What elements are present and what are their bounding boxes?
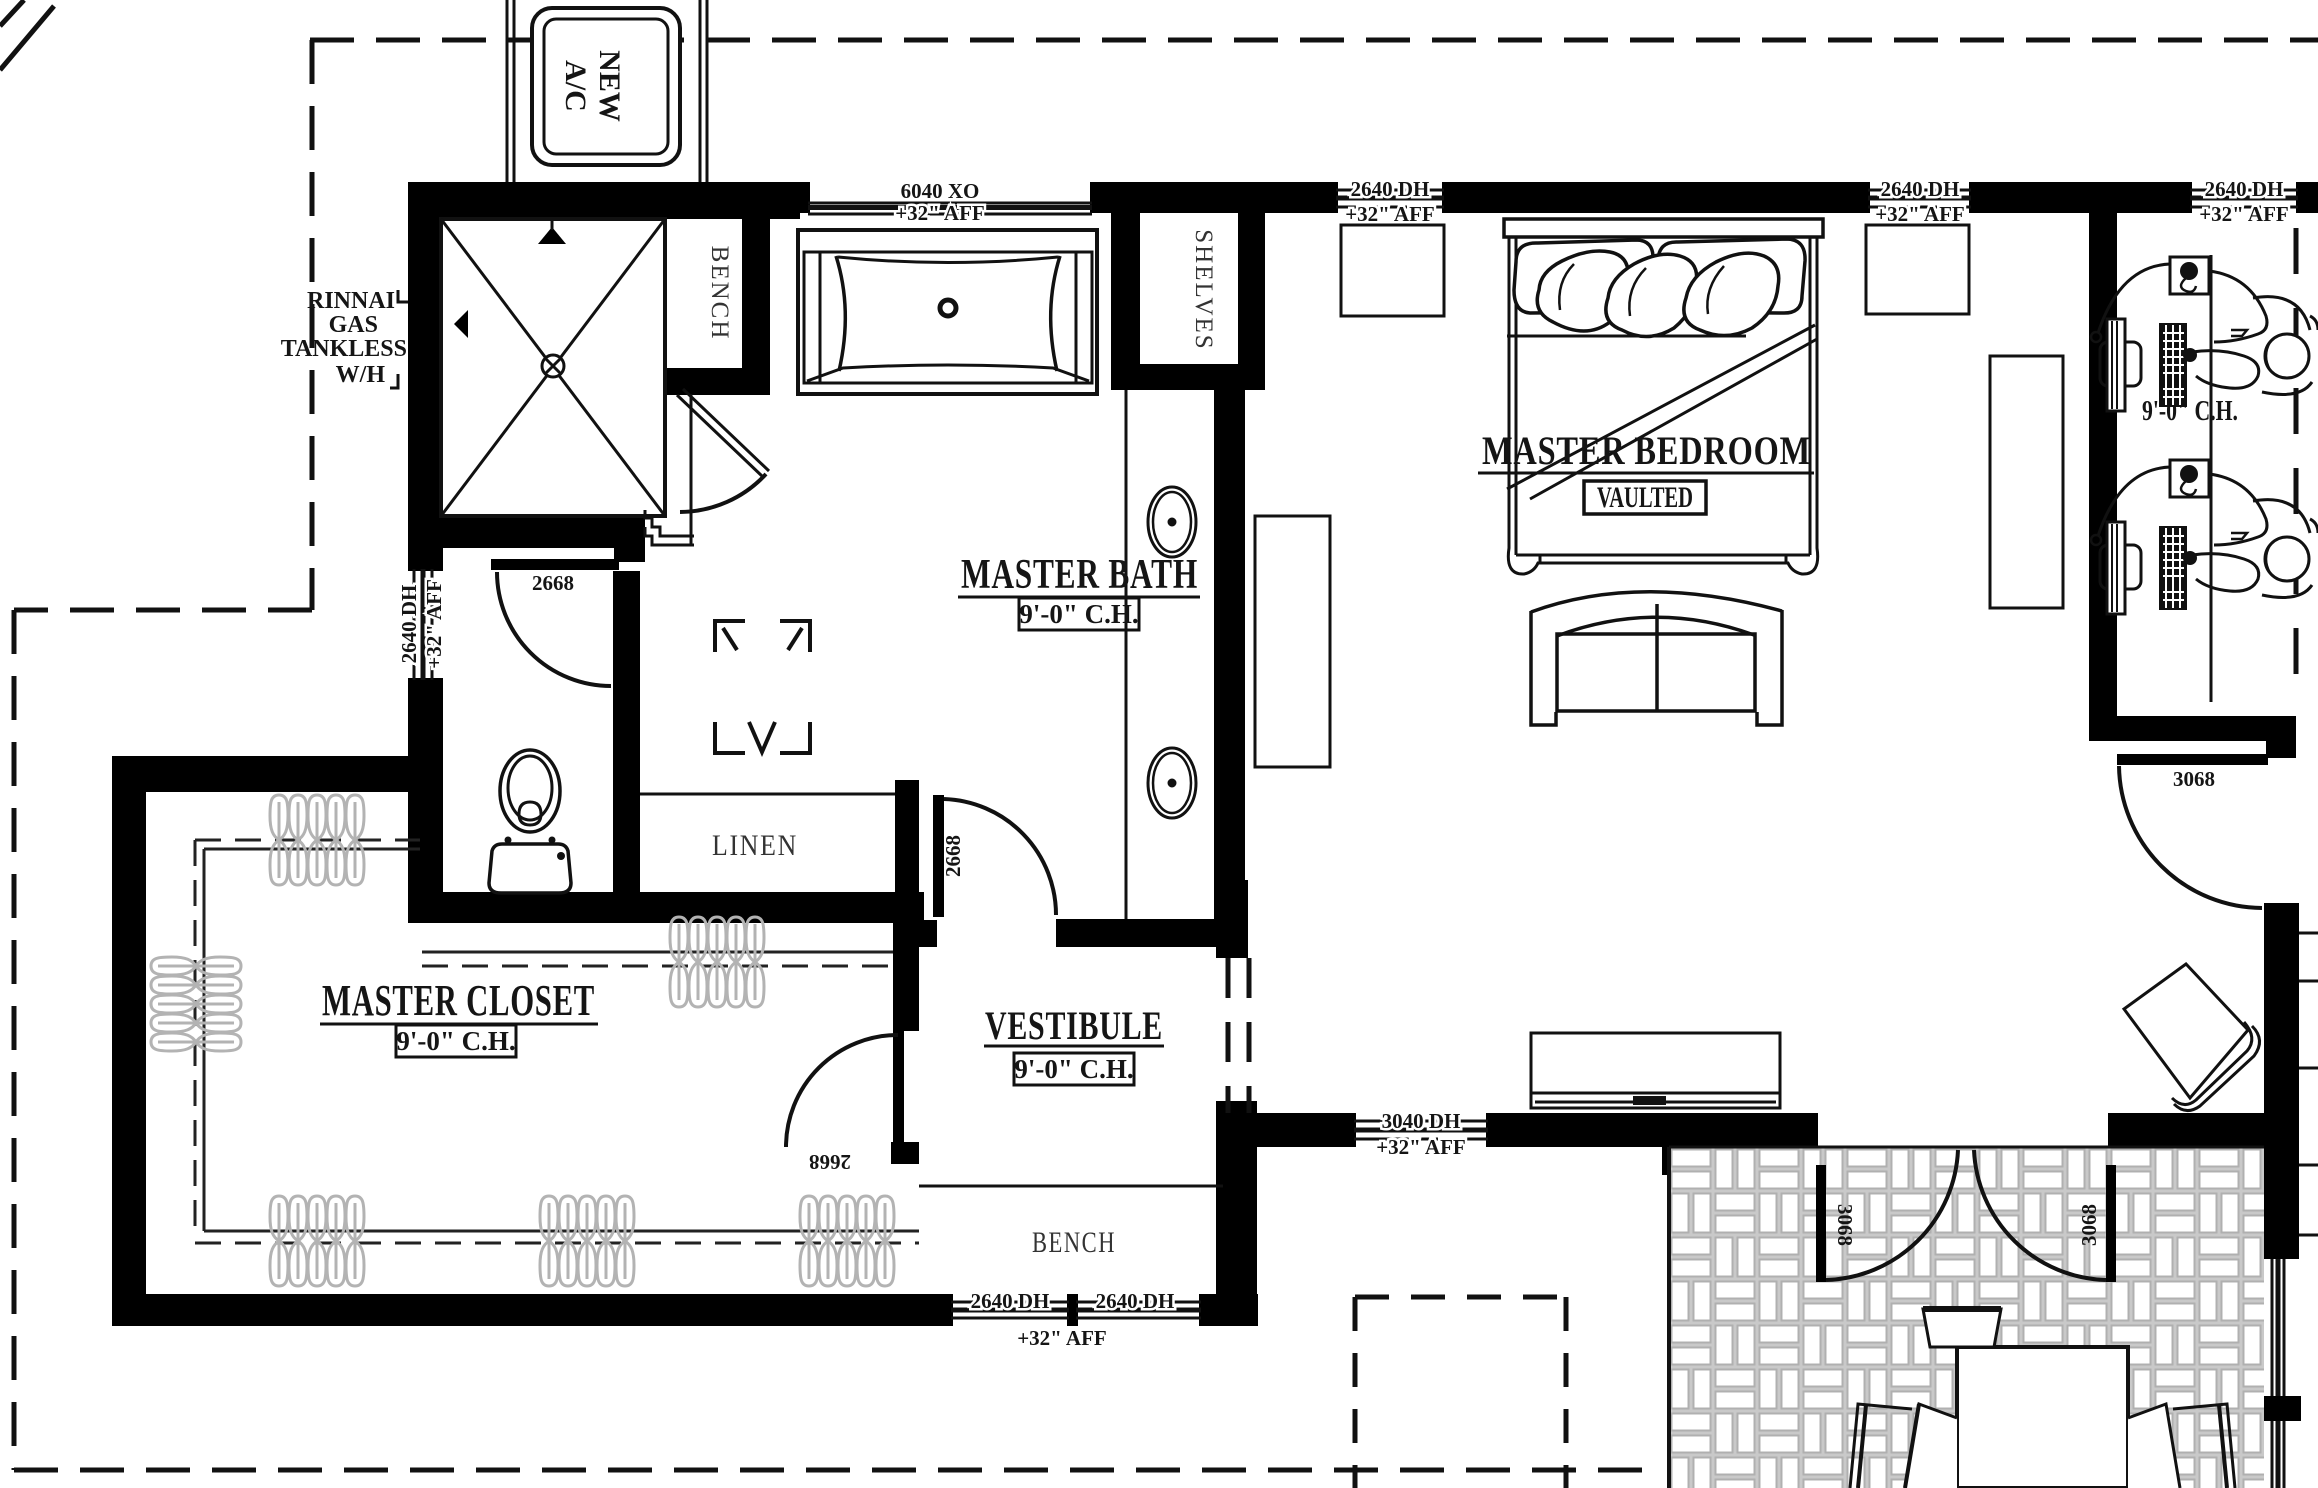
svg-text:GAS: GAS [329, 312, 378, 338]
svg-text:2640 DH: 2640 DH [397, 585, 421, 664]
svg-text:SHELVES: SHELVES [1190, 229, 1217, 350]
svg-text:MASTER CLOSET: MASTER CLOSET [322, 976, 595, 1025]
svg-text:+32" AFF: +32" AFF [895, 201, 985, 225]
svg-text:VAULTED: VAULTED [1597, 481, 1693, 514]
svg-text:+32" AFF: +32" AFF [1376, 1135, 1466, 1159]
svg-text:A/C: A/C [559, 60, 592, 112]
svg-text:RINNAI: RINNAI [307, 288, 395, 314]
svg-text:2640 DH: 2640 DH [1096, 1289, 1175, 1313]
svg-text:3040 DH: 3040 DH [1382, 1109, 1461, 1133]
svg-text:2640 DH: 2640 DH [1881, 177, 1960, 201]
svg-text:VESTIBULE: VESTIBULE [985, 1003, 1163, 1048]
svg-text:9'-0" C.H.: 9'-0" C.H. [396, 1026, 515, 1056]
svg-text:+32" AFF: +32" AFF [1875, 202, 1965, 226]
svg-text:BENCH: BENCH [706, 246, 733, 341]
svg-text:2640 DH: 2640 DH [2205, 177, 2284, 201]
svg-text:3068: 3068 [2173, 767, 2215, 791]
svg-text:2668: 2668 [809, 1150, 851, 1174]
svg-text:9'-0" C.H.: 9'-0" C.H. [1014, 1054, 1133, 1084]
svg-text:3068: 3068 [1833, 1204, 1857, 1246]
svg-text:9'-0" C.H.: 9'-0" C.H. [1019, 599, 1138, 629]
svg-text:LINEN: LINEN [712, 829, 798, 862]
svg-text:6040 XO: 6040 XO [901, 179, 980, 203]
svg-text:9'-0" C.H.: 9'-0" C.H. [2142, 396, 2238, 427]
svg-text:2640 DH: 2640 DH [971, 1289, 1050, 1313]
svg-text:MASTER BEDROOM: MASTER BEDROOM [1482, 428, 1811, 473]
svg-text:2640 DH: 2640 DH [1351, 177, 1430, 201]
svg-text:MASTER BATH: MASTER BATH [961, 552, 1198, 598]
svg-text:BENCH: BENCH [1032, 1226, 1116, 1259]
svg-text:+32" AFF: +32" AFF [2199, 202, 2289, 226]
svg-text:+32" AFF: +32" AFF [1345, 202, 1435, 226]
svg-text:2668: 2668 [941, 835, 965, 877]
svg-text:NEW: NEW [593, 50, 626, 122]
svg-text:W/H: W/H [336, 362, 386, 388]
svg-text:+32" AFF: +32" AFF [1017, 1326, 1107, 1350]
svg-text:TANKLESS: TANKLESS [281, 336, 407, 362]
svg-text:2668: 2668 [532, 571, 574, 595]
svg-text:+32" AFF: +32" AFF [422, 579, 446, 669]
svg-text:3068: 3068 [2077, 1204, 2101, 1246]
